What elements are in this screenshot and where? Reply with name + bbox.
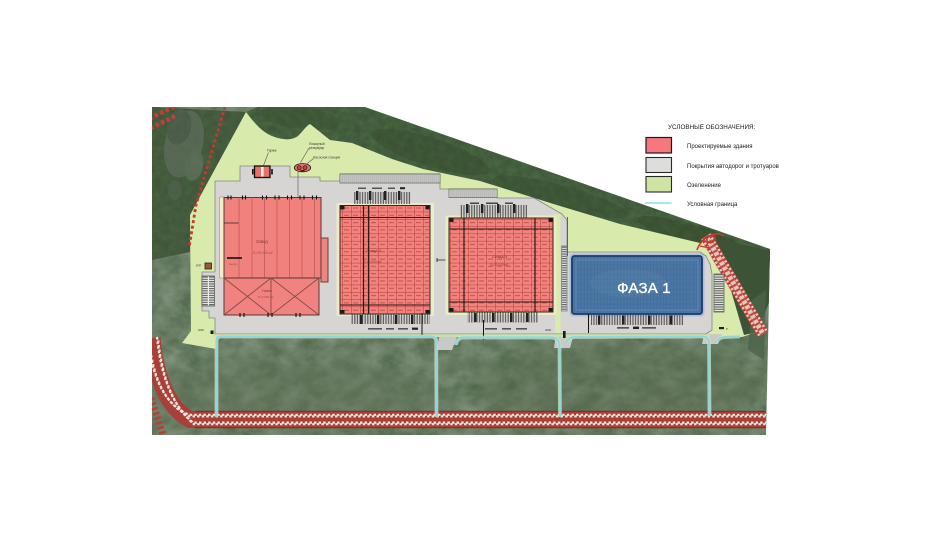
svg-text:Навес: Навес	[262, 289, 272, 293]
svg-text:Склад 3: Склад 3	[492, 254, 508, 259]
svg-text:4000: 4000	[198, 328, 204, 332]
svg-text:Завод: Завод	[256, 239, 268, 244]
svg-text:Озеленение: Озеленение	[687, 183, 722, 189]
svg-text:S=25 000 м2: S=25 000 м2	[253, 251, 273, 255]
svg-text:Гараж: Гараж	[267, 149, 277, 153]
svg-text:КПП: КПП	[196, 264, 201, 268]
svg-text:Условная граница: Условная граница	[687, 202, 738, 208]
svg-text:Насосная станция: Насосная станция	[313, 156, 340, 160]
svg-text:Склад 2: Склад 2	[366, 248, 382, 253]
svg-text:P: P	[726, 327, 728, 331]
svg-text:ФАЗА 1: ФАЗА 1	[617, 280, 671, 297]
svg-text:S=3 000 м2: S=3 000 м2	[258, 295, 274, 299]
svg-text:УСЛОВНЫЕ ОБОЗНАЧЕНИЯ:: УСЛОВНЫЕ ОБОЗНАЧЕНИЯ:	[668, 124, 756, 131]
svg-text:Проектируемые здания: Проектируемые здания	[687, 144, 752, 150]
svg-text:Покрытия автодорог и тротуаров: Покрытия автодорог и тротуаров	[687, 164, 779, 170]
svg-text:S=18 000 м2: S=18 000 м2	[363, 260, 382, 264]
svg-text:резервуар: резервуар	[309, 146, 324, 150]
svg-text:въезд: въезд	[229, 262, 237, 266]
svg-text:S=20 000 м2: S=20 000 м2	[490, 263, 509, 267]
svg-text:4000: 4000	[545, 328, 552, 332]
